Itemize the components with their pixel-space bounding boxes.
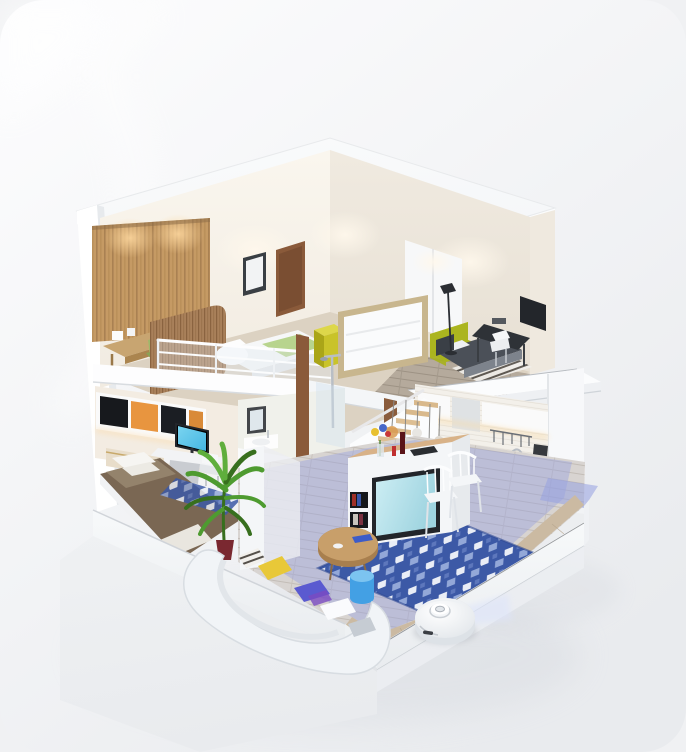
cabinet-cubby-lit [131, 401, 158, 432]
book-spine [353, 514, 358, 525]
wood-door [276, 241, 305, 317]
cabinet-door-black [100, 396, 128, 428]
blue-stool [350, 570, 374, 604]
cutaway-scene [0, 0, 686, 752]
apartment-cutaway-illustration [0, 0, 686, 752]
desk-box [112, 331, 123, 340]
book-spine [357, 494, 361, 506]
desk-items [492, 318, 506, 324]
television [372, 468, 440, 542]
desk-box [127, 328, 135, 336]
shower-glass [316, 382, 345, 448]
red-glass [392, 446, 396, 456]
wine-bottle [400, 432, 405, 454]
lidar-lens [436, 606, 445, 612]
slab-end-face [584, 500, 589, 546]
flower-yellow [371, 428, 379, 436]
flower-blue [379, 424, 387, 432]
bathroom-door-post [296, 334, 309, 464]
picture-frame-mat [246, 256, 263, 291]
partition-side [264, 446, 300, 566]
book-spine [359, 514, 363, 525]
small-dish [333, 544, 343, 549]
book-spine [352, 494, 356, 506]
ceiling-light-pool [309, 211, 381, 259]
glass-vase [377, 444, 384, 457]
upper-back-wall-far-right [530, 210, 555, 375]
flower-red [385, 431, 391, 437]
